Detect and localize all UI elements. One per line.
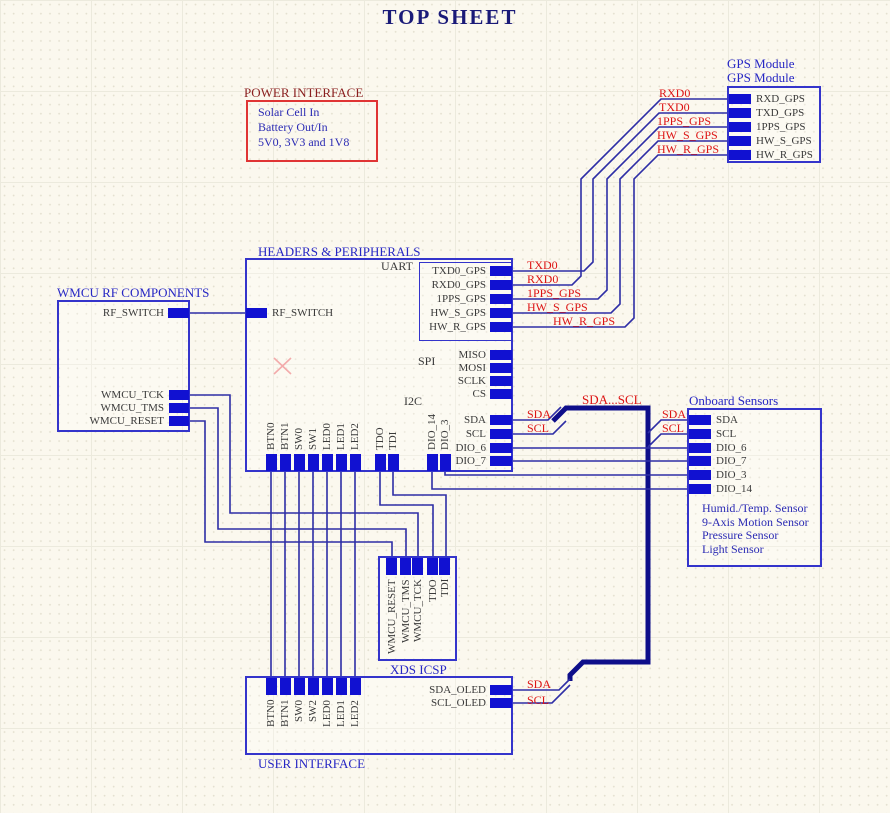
net-label-1pps[interactable]: 1PPS_GPS [657,115,711,127]
sensors-pin-label: DIO_6 [716,442,747,454]
gps-pin-txd[interactable] [729,108,751,118]
net-label-scl[interactable]: SCL [527,422,549,434]
sensors-pin-label: DIO_14 [716,483,752,495]
headers-pin-dio3[interactable] [440,454,451,471]
headers-pin-sw1[interactable] [308,454,319,471]
uart-pin-label: RXD0_GPS [382,279,486,291]
user-pin-sda-oled[interactable] [490,685,512,695]
user-sheet-label[interactable]: USER INTERFACE [258,757,365,770]
xds-pin-wmcu-reset[interactable] [386,558,397,575]
sensors-line-1: Humid./Temp. Sensor [702,502,808,515]
uart-pin-hws-gps[interactable] [490,308,512,318]
user-pin-sw2[interactable] [308,678,319,695]
gps-pin-label: HW_R_GPS [756,149,813,161]
gps-pin-rxd[interactable] [729,94,751,104]
user-pin-label: SCL_OLED [382,697,486,709]
gps-pin-hwr[interactable] [729,150,751,160]
user-pin-led0[interactable] [322,678,333,695]
xds-sheet-label[interactable]: XDS ICSP [390,663,447,676]
gps-pin-label: RXD_GPS [756,93,805,105]
sensors-pin-label: SCL [716,428,736,440]
wire-tdi[interactable] [393,471,446,558]
headers-pin-label: TDO [373,390,387,450]
user-pin-led2[interactable] [350,678,361,695]
user-pin-label: LED1 [334,700,348,750]
net-label-sda[interactable]: SDA [527,408,551,420]
headers-pin-label: RF_SWITCH [272,307,333,319]
user-pin-scl-oled[interactable] [490,698,512,708]
uart-pin-label: TXD0_GPS [382,265,486,277]
headers-pin-label: SW0 [292,390,306,450]
wire-sensor-scl[interactable] [648,434,687,447]
spi-pin-mosi[interactable] [490,363,512,373]
sensors-pin-label: DIO_7 [716,455,747,467]
user-pin-led1[interactable] [336,678,347,695]
headers-pin-label: DIO_3 [438,390,452,450]
rf-pin-wmcu-tck[interactable] [169,390,189,400]
headers-pin-label: DIO_14 [425,390,439,450]
power-interface-label[interactable]: POWER INTERFACE [244,85,384,101]
headers-pin-label: LED2 [348,390,362,450]
sensors-pin-dio6[interactable] [689,443,711,453]
rf-sheet-label[interactable]: WMCU RF COMPONENTS [57,286,209,299]
uart-pin-label: HW_R_GPS [382,321,486,333]
net-label-hwr[interactable]: HW_R_GPS [657,143,719,155]
gps-pin-1pps[interactable] [729,122,751,132]
bus-label-sda-scl[interactable]: SDA...SCL [582,394,642,406]
page-title: TOP SHEET [300,5,600,29]
sensors-pin-dio14[interactable] [689,484,711,494]
xds-pin-label: TDI [438,579,452,659]
uart-pin-label: 1PPS_GPS [382,293,486,305]
xds-pin-wmcu-tck[interactable] [412,558,423,575]
net-label-txd0[interactable]: TXD0 [527,259,558,271]
xds-pin-label: WMCU_RESET [385,579,399,659]
user-pin-label: BTN0 [264,700,278,750]
headers-pin-btn1[interactable] [280,454,291,471]
headers-pin-label: BTN0 [264,390,278,450]
uart-pin-txd0-gps[interactable] [490,266,512,276]
spi-pin-cs[interactable] [490,389,512,399]
gps-sheet-file[interactable]: GPS Module [727,71,795,84]
gps-pin-label: TXD_GPS [756,107,804,119]
user-pin-label: BTN1 [278,700,292,750]
power-line-3: 5V0, 3V3 and 1V8 [258,136,349,149]
xds-pin-tdo[interactable] [427,558,438,575]
rf-pin-wmcu-tms[interactable] [169,403,189,413]
sensors-pin-dio3[interactable] [689,470,711,480]
user-pin-label: SDA_OLED [382,684,486,696]
user-pin-label: LED0 [320,700,334,750]
sensors-pin-dio7[interactable] [689,456,711,466]
user-pin-label: LED2 [348,700,362,750]
i2c-pin-sda[interactable] [490,415,512,425]
i2c-pin-dio7[interactable] [490,456,512,466]
headers-pin-label: BTN1 [278,390,292,450]
net-label-hws[interactable]: HW_S_GPS [657,129,718,141]
sensors-pin-scl[interactable] [689,429,711,439]
net-label-rxd0[interactable]: RXD0 [659,87,690,99]
schematic-sheet: TOP SHEET POWER INTERFACE Solar Cell In … [0,0,890,813]
i2c-pin-scl[interactable] [490,429,512,439]
net-label-scl[interactable]: SCL [662,422,684,434]
net-label-hws[interactable]: HW_S_GPS [527,301,588,313]
spi-pin-label: SCLK [382,375,486,387]
spi-pin-label: MISO [382,349,486,361]
rf-pin-label: RF_SWITCH [60,307,164,319]
bus-sda-scl[interactable] [553,408,648,681]
headers-pin-label: LED0 [320,390,334,450]
rf-pin-label: WMCU_TCK [60,389,164,401]
net-label-scl[interactable]: SCL [527,694,549,706]
power-line-1: Solar Cell In [258,106,319,119]
net-label-rxd0[interactable]: RXD0 [527,273,558,285]
net-label-txd0[interactable]: TXD0 [659,101,690,113]
user-pin-label: SW0 [292,700,306,750]
spi-pin-miso[interactable] [490,350,512,360]
headers-pin-sw0[interactable] [294,454,305,471]
uart-pin-label: HW_S_GPS [382,307,486,319]
headers-pin-label: SW1 [306,390,320,450]
net-label-sda[interactable]: SDA [662,408,686,420]
net-label-hwr[interactable]: HW_R_GPS [553,315,615,327]
headers-pin-tdi[interactable] [388,454,399,471]
sensors-line-4: Light Sensor [702,543,764,556]
sensors-sheet-label[interactable]: Onboard Sensors [689,394,778,407]
headers-sheet-label[interactable]: HEADERS & PERIPHERALS [258,245,421,258]
xds-pin-wmcu-tms[interactable] [400,558,411,575]
user-pin-btn0[interactable] [266,678,277,695]
rf-pin-label: WMCU_RESET [60,415,164,427]
power-line-2: Battery Out/In [258,121,328,134]
uart-pin-1pps-gps[interactable] [490,294,512,304]
rf-pin-wmcu-reset[interactable] [169,416,189,426]
net-label-1pps[interactable]: 1PPS_GPS [527,287,581,299]
headers-pin-led2[interactable] [350,454,361,471]
gps-pin-label: HW_S_GPS [756,135,812,147]
user-pin-btn1[interactable] [280,678,291,695]
headers-pin-led0[interactable] [322,454,333,471]
gps-pin-label: 1PPS_GPS [756,121,806,133]
sensors-pin-sda[interactable] [689,415,711,425]
gps-pin-hws[interactable] [729,136,751,146]
i2c-pin-dio6[interactable] [490,443,512,453]
headers-pin-label: LED1 [334,390,348,450]
spi-pin-sclk[interactable] [490,376,512,386]
net-label-sda[interactable]: SDA [527,678,551,690]
sensors-pin-label: SDA [716,414,738,426]
uart-pin-hwr-gps[interactable] [490,322,512,332]
uart-pin-rxd0-gps[interactable] [490,280,512,290]
rf-pin-label: WMCU_TMS [60,402,164,414]
headers-pin-rf-switch[interactable] [246,308,267,318]
rf-pin-rf-switch[interactable] [168,308,189,318]
sensors-line-3: Pressure Sensor [702,529,778,542]
user-pin-sw0[interactable] [294,678,305,695]
user-pin-label: SW2 [306,700,320,750]
gps-sheet-name[interactable]: GPS Module [727,57,795,70]
headers-pin-led1[interactable] [336,454,347,471]
headers-pin-tdo[interactable] [375,454,386,471]
spi-pin-label: MOSI [382,362,486,374]
sensors-pin-label: DIO_3 [716,469,747,481]
xds-pin-label: WMCU_TCK [411,579,425,659]
headers-pin-label: TDI [386,390,400,450]
headers-pin-btn0[interactable] [266,454,277,471]
xds-pin-tdi[interactable] [439,558,450,575]
headers-pin-dio14[interactable] [427,454,438,471]
